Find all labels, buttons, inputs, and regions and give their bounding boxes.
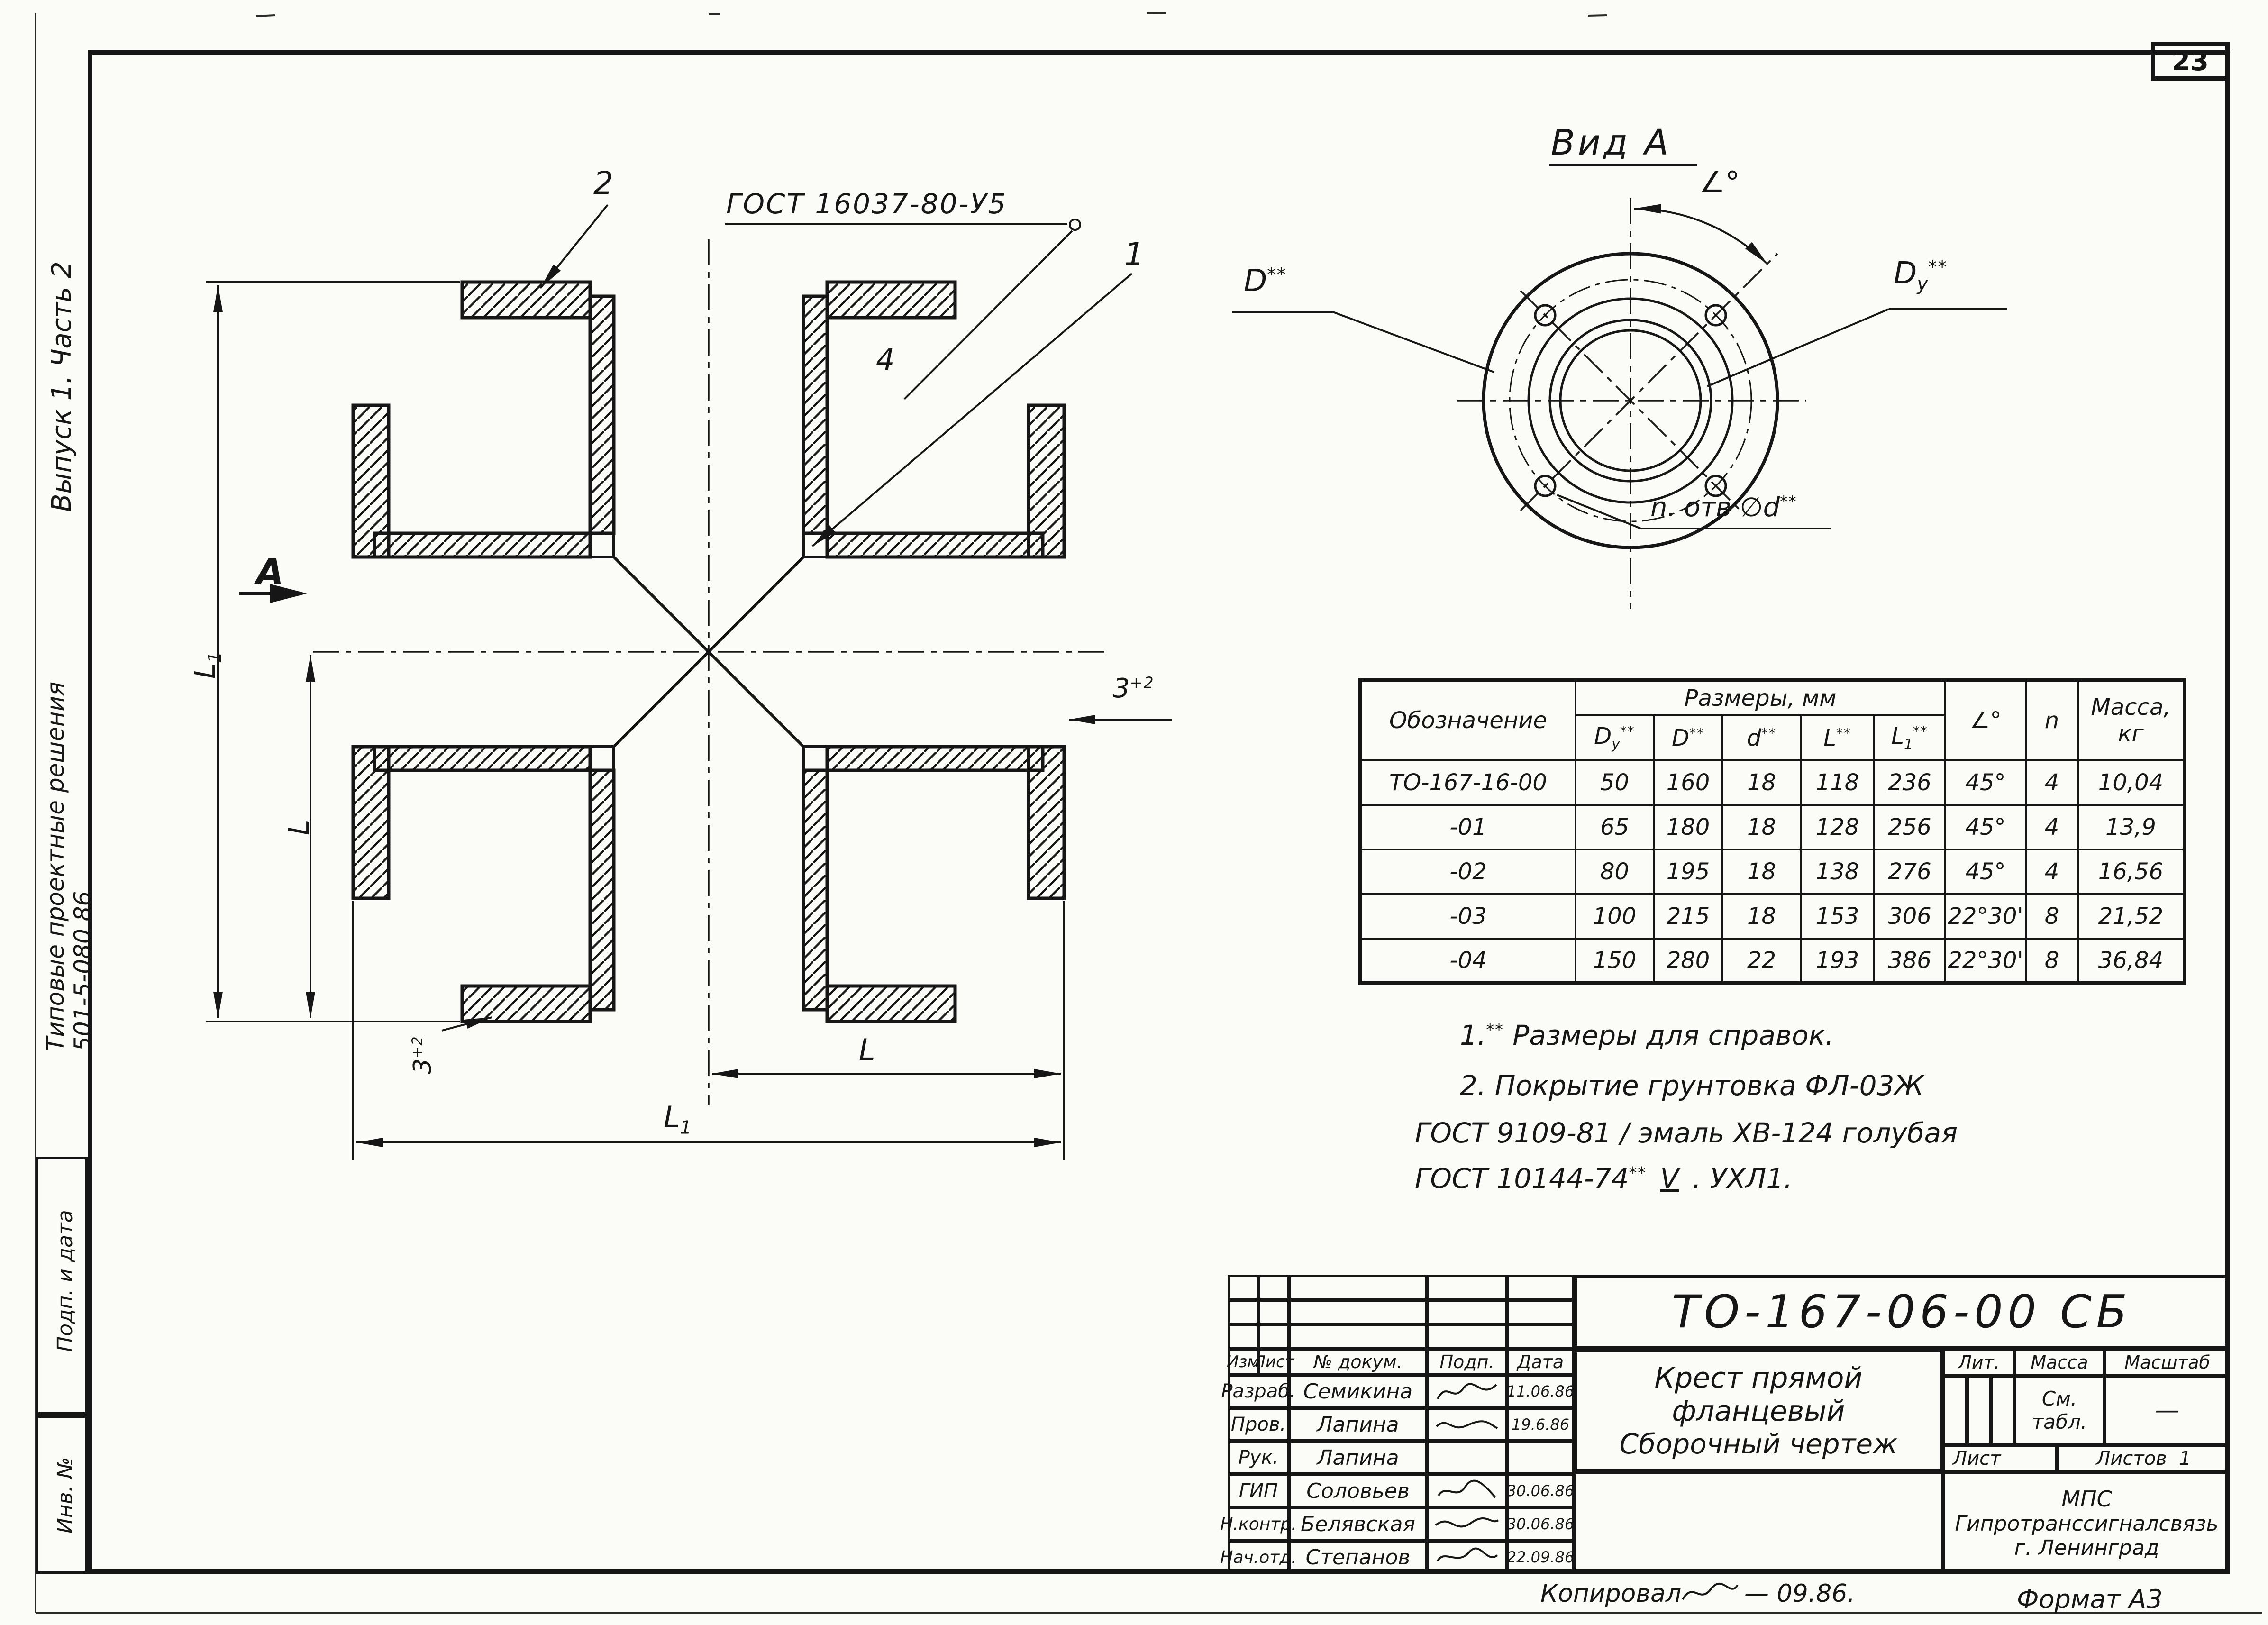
lit-header: Лит. [1943,1349,2014,1376]
doc-title-line3: Сборочный чертеж [1620,1428,1898,1460]
copied-date: — 09.86. [1744,1579,1855,1608]
role-label: Рук. [1228,1441,1289,1474]
rev-header-date: Дата [1507,1349,1574,1375]
table-row: ТО-167-16-00501601811823645°410,04 [1360,760,2185,805]
view-direction-label: А [256,551,284,593]
signature-cell [1427,1474,1507,1507]
gost-weld-callout: ГОСТ 16037-80-У5 [726,188,1007,220]
role-date: 22.09.86 [1507,1541,1574,1574]
margin-series-text: Типовые проектные решения 501-5-080.86 [42,682,97,1051]
title-block: Изм Лист № докум. Подп. Дата Разраб. Сем… [1228,1275,2230,1574]
dim-L-vertical: L [282,820,316,835]
view-a-dy-label: Dу** [1894,256,1948,295]
margin-issue-text: Выпуск 1. Часть 2 [46,261,77,512]
rev-header-list: Лист [1258,1349,1289,1375]
signature-scribble [1434,1479,1500,1503]
role-label: Пров. [1228,1408,1289,1441]
sheets-cell: Листов 1 [2057,1445,2230,1472]
empty-cell [1574,1472,1943,1574]
role-date: 19.6.86 [1507,1408,1574,1441]
position-label-4: 4 [876,342,894,377]
table-header-l1: L1** [1874,715,1945,760]
signature-cell [1427,1541,1507,1574]
doc-title-cell: Крест прямой фланцевый Сборочный чертеж [1574,1349,1943,1472]
org-line1: МПС [2061,1486,2112,1512]
designation-text: ТО-167-06-00 СБ [1672,1286,2131,1338]
rev-header-sign: Подп. [1427,1349,1507,1375]
table-header-dy: Dу** [1576,715,1654,760]
role-date: 11.06.86 [1507,1375,1574,1408]
lit-box-1 [1943,1376,1967,1445]
role-label: ГИП [1228,1474,1289,1507]
note-1: 1.** Размеры для справок. [1415,1019,2126,1051]
role-name: Лапина [1289,1441,1427,1474]
table-row: -031002151815330622°30'821,52 [1360,894,2185,939]
table-row: -01651801812825645°413,9 [1360,805,2185,849]
position-label-2: 2 [593,165,613,201]
table-header-d: D** [1654,715,1722,760]
scale-header: Масштаб [2104,1349,2230,1376]
doc-title-line2: фланцевый [1672,1395,1845,1428]
role-label: Нач.отд. [1228,1541,1289,1574]
doc-title-line1: Крест прямой [1655,1361,1863,1395]
table-header-l: L** [1801,715,1874,760]
dim-L1-vertical: L1 [189,652,225,679]
note-2: 2. Покрытие грунтовка ФЛ-03Ж [1415,1069,2126,1102]
scale-value: — [2104,1376,2230,1445]
notes-block: 1.** Размеры для справок. 2. Покрытие гр… [1415,1019,2126,1195]
page-number: 23 [2172,46,2209,77]
dim-L1-horizontal: L1 [664,1100,692,1138]
dimensions-table: Обозначение Размеры, мм ∠° n Масса, кг D… [1358,678,2186,985]
table-row: -02801951813827645°416,56 [1360,849,2185,894]
role-label: Н.контр. [1228,1507,1289,1541]
role-name: Семикина [1289,1375,1427,1408]
table-header-angle: ∠° [1945,680,2026,760]
table-row: -041502802219338622°30'836,84 [1360,939,2185,983]
signature-cell [1427,1507,1507,1541]
role-label: Разраб. [1228,1375,1289,1408]
view-a-title: Вид А [1551,122,1671,163]
role-name: Белявская [1289,1507,1427,1541]
role-name: Лапина [1289,1408,1427,1441]
signature-scribble [1434,1412,1500,1437]
signature-cell [1427,1408,1507,1441]
view-a-angle-label: ∠° [1699,165,1740,200]
margin-code-line: 501-5-080.86 [69,682,97,1051]
lit-box-3 [1991,1376,2014,1445]
position-label-1: 1 [1124,236,1144,273]
view-a-d-label: D** [1244,264,1286,299]
copier-signature-scribble [1679,1579,1740,1607]
sheet-cell: Лист [1943,1445,2057,1472]
mass-header: Масса [2014,1349,2104,1376]
role-date: 30.06.86 [1507,1507,1574,1541]
designation-cell: ТО-167-06-00 СБ [1574,1275,2230,1349]
table-header-mass: Масса, кг [2078,680,2185,760]
table-header-designation: Обозначение [1360,680,1576,760]
view-a-holes-label: n. отв ∅d** [1650,492,1797,523]
role-name: Соловьев [1289,1474,1427,1507]
role-date [1507,1441,1574,1474]
page-number-box: 23 [2151,42,2230,81]
copied-label: Копировал [1540,1579,1681,1608]
dim-L-horizontal: L [859,1032,875,1067]
note-4: ГОСТ 10144-74** V . УХЛ1. [1415,1162,2126,1195]
role-name: Степанов [1289,1541,1427,1574]
lit-box-2 [1967,1376,1991,1445]
table-header-sizes-group: Размеры, мм [1576,680,1945,715]
role-date: 30.06.86 [1507,1474,1574,1507]
org-line2: Гипротранссигналсвязь [1955,1512,2219,1536]
table-header-n: n [2026,680,2078,760]
format-note: Формат А3 [2017,1584,2163,1614]
drawing-sheet: 23 Выпуск 1. Часть 2 Типовые проектные р… [0,0,2268,1625]
mass-value: См.табл. [2014,1376,2104,1445]
signature-scribble [1434,1545,1500,1570]
rev-header-docnum: № докум. [1289,1349,1427,1375]
note-3: ГОСТ 9109-81 / эмаль ХВ-124 голубая [1415,1117,2126,1149]
signature-cell [1427,1375,1507,1408]
margin-series-line: Типовые проектные решения [42,682,69,1051]
dim-gap-right: 3+2 [1113,673,1155,704]
margin-box-sign-label: Подп. и дата [53,1210,77,1352]
org-line3: г. Ленинград [2014,1536,2159,1560]
margin-box-inv-label: Инв. № [53,1457,77,1534]
signature-scribble [1434,1379,1500,1404]
signature-scribble [1434,1512,1500,1536]
dim-gap-bottom: 3+2 [409,1035,437,1074]
organization-cell: МПС Гипротранссигналсвязь г. Ленинград [1943,1472,2230,1574]
table-header-dsmall: d** [1722,715,1801,760]
